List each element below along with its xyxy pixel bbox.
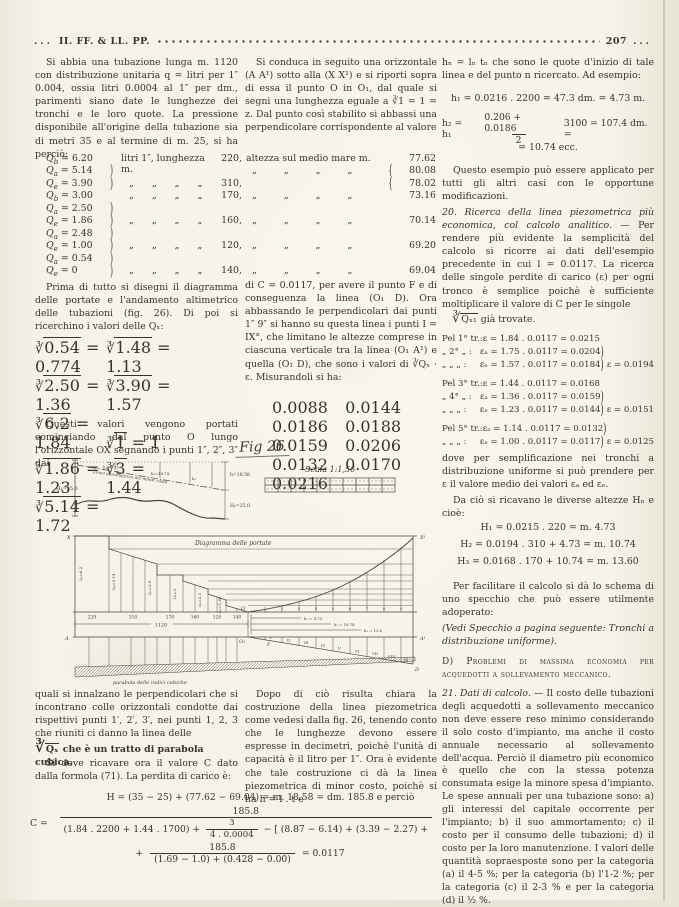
col3-paragraph-3: dove per semplificazione nei tronchi a d… bbox=[442, 452, 654, 491]
length-value: 120, bbox=[208, 240, 242, 251]
h1-label: h₁=4.73 bbox=[103, 465, 119, 470]
section-20-body: Per rendere più evidente la semplicità d… bbox=[442, 220, 654, 310]
tronco-mean: ε = 0.0125 bbox=[607, 437, 654, 447]
tronco-line: „ „ „ : εₑ = 1.57 . 0.0117 = 0.0184 ) ε … bbox=[442, 360, 654, 373]
c-result: = 0.0117 bbox=[302, 848, 345, 859]
col1-paragraph-2: Prima di tutto si disegni il diagramma d… bbox=[35, 281, 238, 333]
tronco-line: „ 2° „ : εₐ = 1.75 . 0.0117 = 0.0204 ) bbox=[442, 347, 654, 360]
portata-symbol: Qb = 6.20 bbox=[46, 153, 110, 166]
cube-root-term: ∛2.50 = 1.36 bbox=[35, 376, 101, 402]
altezza-row bbox=[246, 228, 436, 240]
radicand: Qₓ bbox=[45, 743, 60, 755]
col3-paragraph-1: hₙ = lₙ tₙ che sono le quote d'inizio di… bbox=[442, 56, 654, 82]
length-caption: „ „ „ „ bbox=[119, 265, 208, 276]
altezza-row: „ „ „ „ 70.14 bbox=[246, 215, 436, 227]
roman-numeral: IV bbox=[321, 643, 325, 648]
tronco-line: Pel 5° tr.: εₐ = 1.14 . 0.0117 = 0.0132 … bbox=[442, 424, 654, 437]
radicand: 3.90 bbox=[114, 375, 152, 395]
portata-value: = 3.90 bbox=[61, 178, 93, 189]
altezza-value: 69.04 bbox=[396, 265, 436, 276]
section-21-heading: 21. Dati di calcolo. — bbox=[442, 688, 543, 699]
length-caption: „ „ „ „ bbox=[119, 190, 208, 201]
header-dots-left: ... bbox=[34, 36, 53, 47]
altezza-row bbox=[246, 253, 436, 265]
altezza-table: altezza sul medio mare m. 77.62 „ „ „ „ … bbox=[246, 153, 436, 277]
length-value: 170, bbox=[208, 190, 242, 201]
altezza-caption: altezza sul medio mare m. bbox=[246, 153, 388, 164]
col3-paragraph-2: Questo esempio può essere applicato per … bbox=[442, 164, 654, 203]
portata-symbol: Qa = 5.14 bbox=[46, 165, 110, 178]
section-20-root-line: ∛Qₓ₁ già trovate. bbox=[452, 312, 652, 326]
pair-brace: ) bbox=[601, 402, 607, 417]
q-label: Qₐ=5.14 bbox=[111, 573, 116, 591]
measured-value: 0.0206 bbox=[331, 436, 399, 449]
point-label-o: O bbox=[241, 606, 245, 612]
h2-label: h₂=10.74 bbox=[151, 471, 170, 476]
c-denominator: (1.84 . 2200 + 1.44 . 1700) + 3 4 . 0.00… bbox=[60, 817, 433, 841]
altezza-value: 69.20 bbox=[396, 240, 436, 251]
q-label: Qₑ=1.86 bbox=[217, 596, 222, 614]
c-formula: C = 185.8 (1.84 . 2200 + 1.44 . 1700) + … bbox=[30, 806, 438, 841]
col1-paragraph-4a: quali si innalzano le perpendicolari che… bbox=[35, 688, 238, 740]
H-value-line: H₂ = 0.0194 . 310 + 4.73 = m. 10.74 bbox=[442, 539, 654, 556]
cube-root-term: ∛3.90 = 1.57 bbox=[106, 376, 172, 402]
plus-sign: + bbox=[135, 848, 143, 859]
portate-table: Qb = 6.20 litri 1″, lunghezza m. 220, Qa… bbox=[46, 153, 242, 277]
section-20: 20. Ricerca della linea piezometrica più… bbox=[442, 206, 654, 311]
portate-row: Qe = 1.86 ) „ „ „ „ 160, bbox=[46, 215, 242, 227]
altezza-row bbox=[246, 203, 436, 215]
altezza-value: 73.16 bbox=[396, 190, 436, 201]
eq2-lead: h₂ = h₁ bbox=[442, 118, 473, 140]
col3-equation-2-cont: = 10.74 ecc. bbox=[442, 141, 654, 154]
radicand: 0.54 bbox=[43, 337, 81, 357]
altezza-row: „ „ „ „ 69.20 bbox=[246, 240, 436, 252]
tronco-equation: ε = 1.44 . 0.0117 = 0.0168 bbox=[483, 379, 600, 389]
portata-symbol: Qe = 3.90 bbox=[46, 178, 110, 191]
header-dots-right: ... bbox=[633, 36, 652, 47]
portata-value: = 0 bbox=[61, 265, 78, 276]
distance-label: 220 bbox=[88, 616, 97, 621]
section-21-body: Il costo delle tubazioni degli acquedott… bbox=[442, 688, 654, 906]
length-caption: „ „ „ „ bbox=[119, 178, 208, 189]
altezza-row: „ „ „ „ { 80.08 bbox=[246, 165, 436, 177]
portate-row: Qe = 0 ) „ „ „ „ 140, bbox=[46, 265, 242, 277]
tronco-label: Pel 1° tr.: bbox=[442, 334, 483, 344]
col3-equation-1: h₁ = 0.0216 . 2200 = 47.3 dm. = 4.73 m. bbox=[442, 92, 654, 105]
tronco-line: Pel 1° tr.: ε = 1.84 . 0.0117 = 0.0215 bbox=[442, 334, 654, 347]
tronco-label: „ 2° „ : bbox=[442, 347, 480, 357]
altezza-row: „ „ „ „ 69.04 bbox=[246, 265, 436, 277]
roman-numeral: IX bbox=[404, 657, 408, 662]
hdim-label: h₂ = 10.74 bbox=[334, 622, 355, 627]
journal-title: II. FF. & LL. PP. bbox=[59, 36, 150, 47]
den-inner-num: 3 bbox=[225, 818, 238, 829]
tronco-equation: εₐ = 1.75 . 0.0117 = 0.0204 bbox=[480, 347, 601, 357]
altezza-caption: „ „ „ „ bbox=[246, 265, 388, 276]
tronco-mean: ε = 0.0151 bbox=[607, 405, 654, 415]
radicand: 1.48 bbox=[114, 337, 152, 357]
portate-row: Qa = 2.48 ) bbox=[46, 228, 242, 240]
portata-symbol: Qe = 1.86 bbox=[46, 215, 110, 228]
portata-value: = 2.50 bbox=[61, 203, 93, 214]
roman-numeral: III bbox=[304, 640, 309, 645]
col1-paragraph-1: Si abbia una tubazione lunga m. 1120 con… bbox=[35, 56, 238, 161]
residual-head-label: H₂=25,0 bbox=[230, 503, 250, 509]
scale-bar bbox=[265, 478, 395, 492]
measured-value: 0.0144 bbox=[331, 398, 399, 411]
portata-value: = 0.54 bbox=[61, 253, 93, 264]
pair-brace: { bbox=[388, 176, 396, 190]
col3-paragraph-5: Per facilitare il calcolo si dà lo schem… bbox=[442, 580, 654, 619]
tronco-equation: εₐ = 1.14 . 0.0117 = 0.0132 bbox=[483, 424, 604, 434]
distance-label: 120 bbox=[213, 616, 222, 621]
length-value: 310, bbox=[208, 178, 242, 189]
measured-value: 0.0188 bbox=[331, 417, 399, 430]
roman-numeral: VIII bbox=[387, 654, 396, 659]
altezza-value: 80.08 bbox=[396, 165, 436, 176]
altezza-value: 77.62 bbox=[396, 153, 436, 164]
den-part-b: − [ (8.87 − 6.14) + (3.39 − 2.27) + bbox=[264, 824, 429, 835]
axis-tick: 7 bbox=[366, 607, 368, 611]
tronco-line: „ 4° „ : εₐ = 1.36 . 0.0117 = 0.0159 ) bbox=[442, 392, 654, 405]
length-value: 220, bbox=[208, 153, 242, 164]
portata-symbol: Qe = 1.00 bbox=[46, 240, 110, 253]
axis-tick: 9 bbox=[400, 607, 402, 611]
axis-tick: 2 bbox=[281, 607, 283, 611]
point-label-f: F bbox=[266, 643, 271, 648]
altezza-caption: „ „ „ „ bbox=[246, 215, 388, 226]
portata-value: = 2.48 bbox=[61, 228, 93, 239]
header-dotted-rule bbox=[156, 40, 600, 43]
q-label: Qₑ=3.9 bbox=[147, 580, 152, 595]
length-caption: „ „ „ „ bbox=[119, 240, 208, 251]
altezza-row: „ „ „ „ 73.16 bbox=[246, 190, 436, 202]
den-part-a: (1.84 . 2200 + 1.44 . 1700) + bbox=[64, 824, 201, 835]
point-label-x: X bbox=[66, 535, 71, 541]
portate-row: Qa = 0.54 ) bbox=[46, 253, 242, 265]
distance-label: 140 bbox=[233, 616, 242, 621]
radicand: 2.50 bbox=[43, 375, 81, 395]
scale-label: Scala 1:1,56 bbox=[305, 465, 355, 474]
axis-tick: 5 bbox=[332, 607, 334, 611]
axis-tick: 1 bbox=[264, 607, 266, 611]
h3-label: h₃ bbox=[192, 476, 196, 481]
portate-row: Qe = 1.00 ) „ „ „ „ 120, bbox=[46, 240, 242, 252]
col2-paragraph-1: Si conduca in seguito una orizzontale (A… bbox=[245, 56, 437, 135]
tronco-label: Pel 3° tr.: bbox=[442, 379, 483, 389]
tronco-label: Pel 5° tr.: bbox=[442, 424, 483, 434]
tronchi-calcs: Pel 1° tr.: ε = 1.84 . 0.0117 = 0.0215 „… bbox=[442, 334, 654, 450]
tronco-label: „ „ „ : bbox=[442, 360, 480, 370]
col3-note-specchio: (Vedi Specchio a pagina seguente: Tronch… bbox=[442, 622, 654, 648]
distance-label: 160 bbox=[191, 616, 200, 621]
point-label-a1: A¹ bbox=[419, 636, 426, 642]
altezza-caption: „ „ „ „ bbox=[246, 165, 388, 176]
portata-value: = 3.00 bbox=[61, 190, 93, 201]
portata-symbol: Qa = 0.54 bbox=[46, 253, 110, 266]
altezza-caption: „ „ „ „ bbox=[246, 240, 388, 251]
c-fraction: 185.8 (1.84 . 2200 + 1.44 . 1700) + 3 4 … bbox=[57, 806, 435, 841]
q-label: Qₐ=6.2 bbox=[78, 566, 83, 581]
portata-symbol: Qb = 3.00 bbox=[46, 190, 110, 203]
den-inner-den: 4 . 0.0004 bbox=[206, 829, 258, 841]
tronco-equation: εₐ = 1.36 . 0.0117 = 0.0159 bbox=[480, 392, 601, 402]
tronco-mean: ε = 0.0194 bbox=[607, 360, 654, 370]
roman-numeral: VI bbox=[354, 648, 360, 653]
q-label: Qₐ=2.5 bbox=[197, 592, 202, 607]
length-caption: „ „ „ „ bbox=[119, 215, 208, 226]
tronco-label: „ „ „ : bbox=[442, 437, 480, 447]
altezza-row: altezza sul medio mare m. 77.62 bbox=[246, 153, 436, 165]
point-label-o1: O₁ bbox=[239, 639, 245, 645]
altezza-row: { 78.02 bbox=[246, 178, 436, 190]
length-value: 160, bbox=[208, 215, 242, 226]
hdim-label: h₁ = 4.73 bbox=[304, 616, 323, 621]
portata-symbol: Qa = 2.50 bbox=[46, 203, 110, 216]
den-inner-fraction: 3 4 . 0.0004 bbox=[206, 818, 258, 841]
portata-value: = 6.20 bbox=[61, 153, 93, 164]
head-loss-formula: H = (35 − 25) + (77.62 − 69.04) = m. 18.… bbox=[88, 791, 433, 804]
q-label: Qₐ=3 bbox=[172, 588, 177, 599]
portata-symbol: Qe = 0 bbox=[46, 265, 110, 278]
portate-row: Qb = 6.20 litri 1″, lunghezza m. 220, bbox=[46, 153, 242, 165]
section-21: 21. Dati di calcolo. — Il costo delle tu… bbox=[442, 688, 654, 907]
axis-tick: 6 bbox=[349, 607, 351, 611]
page-header: ... II. FF. & LL. PP. 207 ... bbox=[34, 36, 652, 47]
diagramma-portate-label: Diagramma delle portate bbox=[194, 540, 272, 547]
total-length-label: 1120 bbox=[155, 623, 168, 629]
c-lead: C = bbox=[30, 818, 48, 829]
radicand: Qₓ₁ bbox=[460, 313, 477, 325]
altezza-value: 70.14 bbox=[396, 215, 436, 226]
portata-value: = 5.14 bbox=[61, 165, 93, 176]
figure-26: H₁=35,0 Linea piezometrica del minor cos… bbox=[55, 452, 445, 686]
col2-p2-text: di C = 0.0117, per avere il punto F e di… bbox=[245, 280, 437, 304]
portata-value: = 1.00 bbox=[61, 240, 93, 251]
line2-num: 185.8 bbox=[205, 842, 239, 853]
measured-value: 0.0186 bbox=[258, 417, 326, 430]
col1-paragraph-5: Si deve ricavare ora il valore C dato da… bbox=[35, 757, 238, 783]
c-formula-line2: + 185.8 (1.69 − 1.0) + (0.428 − 0.00) = … bbox=[60, 842, 420, 865]
tronco-equation: ε = 1.84 . 0.0117 = 0.0215 bbox=[483, 334, 600, 344]
roman-numeral: I bbox=[270, 635, 272, 640]
section-20-heading: 20. Ricerca della linea piezometrica più… bbox=[442, 207, 654, 231]
axis-tick: 3 bbox=[298, 607, 300, 611]
tronco-equation: εₑ = 1.57 . 0.0117 = 0.0184 bbox=[480, 360, 601, 370]
c-numerator: 185.8 bbox=[229, 806, 263, 817]
col3-paragraph-4: Da ciò si ricavano le diverse altezze Hₙ… bbox=[442, 494, 654, 520]
tronco-line: „ „ „ : εₑ = 1.00 . 0.0117 = 0.0117 ) ε … bbox=[442, 437, 654, 450]
point-label-d: D bbox=[414, 667, 419, 673]
parabola-caption: parabola delle radici cubiche bbox=[113, 680, 187, 686]
col2-p3-text: Ora abbassando le perpendicolari dai pun… bbox=[245, 293, 437, 383]
length-caption: litri 1″, lunghezza m. bbox=[119, 153, 208, 175]
H-value-line: H₃ = 0.0168 . 170 + 10.74 = m. 13.60 bbox=[442, 556, 654, 573]
cube-root-icon: ∛ bbox=[35, 738, 45, 756]
altezza-caption: „ „ „ „ bbox=[246, 190, 388, 201]
pair-brace: ) bbox=[601, 434, 607, 449]
portate-row: Qe = 3.90 ) „ „ „ „ 310, bbox=[46, 178, 242, 190]
page-number: 207 bbox=[606, 36, 627, 47]
eq2-tail: 3100 = 107.4 dm. = bbox=[564, 118, 654, 140]
measured-value: 0.0088 bbox=[258, 398, 326, 411]
col2-paragraph-4: Dopo di ciò risulta chiara la costruzion… bbox=[245, 688, 437, 806]
line2-fraction: 185.8 (1.69 − 1.0) + (0.428 − 0.00) bbox=[150, 842, 295, 865]
pair-brace: ) bbox=[110, 262, 119, 279]
axis-tick: 4 bbox=[315, 607, 317, 611]
point-label-a: A bbox=[64, 636, 69, 642]
H-values: H₁ = 0.0215 . 220 = m. 4.73H₂ = 0.0194 .… bbox=[442, 522, 654, 573]
roman-numeral: II bbox=[287, 638, 290, 643]
scanned-page: ... II. FF. & LL. PP. 207 ... Si abbia u… bbox=[0, 0, 679, 900]
tronco-line: „ „ „ : εₑ = 1.23 . 0.0117 = 0.0144 ) ε … bbox=[442, 405, 654, 418]
point-label-x1: X¹ bbox=[419, 535, 426, 541]
length-value: 140, bbox=[208, 265, 242, 276]
roman-numeral: VII bbox=[371, 651, 378, 656]
distance-label: 170 bbox=[166, 616, 175, 621]
tronco-label: „ „ „ : bbox=[442, 405, 480, 415]
eq2-num: 0.206 + 0.0186 bbox=[480, 112, 557, 134]
portate-row: Qb = 3.00 „ „ „ „ 170, bbox=[46, 190, 242, 202]
pair-brace: ) bbox=[110, 175, 119, 192]
portata-symbol: Qa = 2.48 bbox=[46, 228, 110, 241]
tronco-line: Pel 3° tr.: ε = 1.44 . 0.0117 = 0.0168 bbox=[442, 379, 654, 392]
axis-tick: 8 bbox=[383, 607, 385, 611]
distance-label: 310 bbox=[129, 616, 138, 621]
hdim-label: h₃ = 13.6 bbox=[364, 628, 383, 633]
cube-root-term: ∛1.48 = 1.13 bbox=[106, 338, 172, 364]
section-D-heading: D) Problemi di massima economia per acqu… bbox=[442, 656, 654, 682]
total-loss-label: h=18.58 bbox=[230, 472, 250, 478]
col2-paragraph-2: di C = 0.0117, per avere il punto F e di… bbox=[245, 279, 437, 384]
cube-root-term: ∛0.54 = 0.774 bbox=[35, 338, 101, 364]
altezza-value: 78.02 bbox=[396, 178, 436, 189]
page-edge-shadow bbox=[663, 0, 665, 900]
portate-row: Qa = 2.50 ) bbox=[46, 203, 242, 215]
root-line-tail: già trovate. bbox=[481, 314, 536, 325]
portata-value: = 1.86 bbox=[61, 215, 93, 226]
tronco-equation: εₑ = 1.00 . 0.0117 = 0.0117 bbox=[480, 437, 601, 447]
pair-brace: ) bbox=[601, 357, 607, 372]
H-value-line: H₁ = 0.0215 . 220 = m. 4.73 bbox=[442, 522, 654, 539]
line2-den: (1.69 − 1.0) + (0.428 − 0.00) bbox=[150, 853, 295, 865]
roman-numeral: V bbox=[337, 646, 341, 651]
pressure-head-label: H₁=35,0 bbox=[56, 486, 78, 492]
tronco-equation: εₑ = 1.23 . 0.0117 = 0.0144 bbox=[480, 405, 601, 415]
profile-labels: H₁=35,0 Linea piezometrica del minor cos… bbox=[56, 465, 250, 510]
tronco-label: „ 4° „ : bbox=[442, 392, 480, 402]
